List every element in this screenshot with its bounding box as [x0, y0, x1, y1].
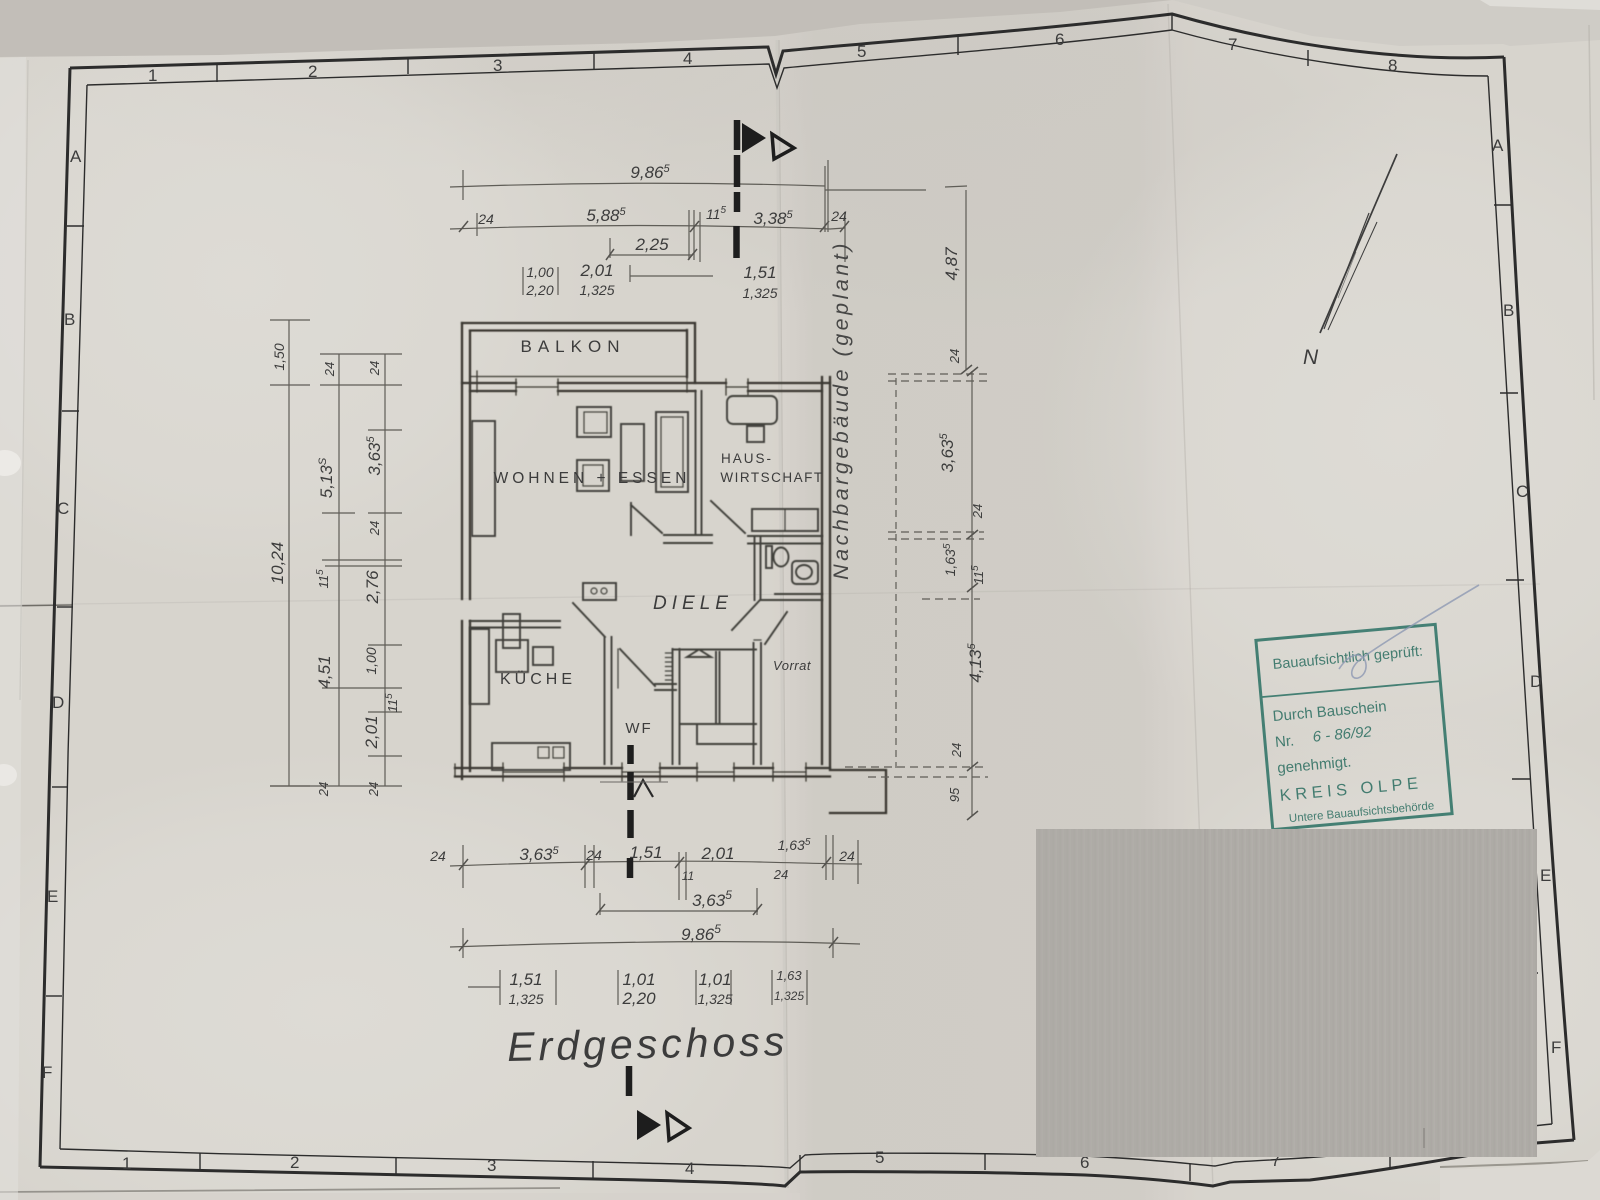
svg-text:E: E — [1540, 866, 1551, 885]
svg-text:4: 4 — [683, 49, 692, 68]
svg-text:1,63: 1,63 — [776, 968, 802, 983]
svg-text:Erdgeschoss: Erdgeschoss — [507, 1018, 789, 1070]
svg-text:3: 3 — [493, 56, 502, 75]
svg-text:1,01: 1,01 — [698, 970, 731, 989]
svg-text:1,51: 1,51 — [629, 843, 662, 862]
svg-text:Vorrat: Vorrat — [773, 658, 812, 673]
svg-text:24: 24 — [366, 782, 381, 797]
svg-text:10,24: 10,24 — [268, 542, 287, 585]
svg-text:2,01: 2,01 — [579, 261, 613, 280]
svg-text:1,325: 1,325 — [774, 989, 804, 1003]
svg-text:Nachbargebäude (geplant): Nachbargebäude (geplant) — [829, 240, 853, 580]
svg-text:1,01: 1,01 — [622, 970, 655, 989]
svg-text:2,01: 2,01 — [700, 844, 734, 863]
svg-text:1,325: 1,325 — [742, 285, 777, 301]
svg-text:24: 24 — [949, 743, 964, 758]
svg-text:2: 2 — [290, 1153, 299, 1172]
svg-text:24: 24 — [322, 362, 337, 377]
svg-text:24: 24 — [585, 847, 602, 863]
svg-text:DIELE: DIELE — [653, 593, 733, 614]
svg-text:95: 95 — [947, 787, 962, 802]
svg-text:KÜCHE: KÜCHE — [500, 670, 576, 688]
svg-text:24: 24 — [316, 782, 331, 797]
svg-text:D: D — [1530, 672, 1542, 691]
svg-text:1,51: 1,51 — [743, 263, 776, 282]
svg-text:F: F — [42, 1063, 52, 1082]
svg-text:24: 24 — [773, 867, 788, 882]
svg-text:A: A — [1492, 136, 1504, 155]
svg-text:2,20: 2,20 — [621, 989, 656, 1008]
svg-text:HAUS-: HAUS- — [721, 451, 773, 466]
svg-text:Nr.: Nr. — [1274, 732, 1295, 751]
svg-text:WIRTSCHAFT: WIRTSCHAFT — [720, 470, 823, 485]
svg-text:24: 24 — [838, 848, 855, 864]
svg-text:B: B — [64, 310, 75, 329]
svg-text:24: 24 — [947, 349, 962, 364]
svg-text:A: A — [70, 147, 82, 166]
svg-text:1,325: 1,325 — [579, 282, 614, 298]
svg-text:1,51: 1,51 — [509, 970, 542, 989]
svg-text:1,00: 1,00 — [363, 647, 379, 674]
svg-text:1,325: 1,325 — [508, 991, 543, 1007]
svg-text:2,76: 2,76 — [363, 570, 382, 605]
svg-text:4,51: 4,51 — [315, 655, 334, 688]
svg-text:WOHNEN + ESSEN: WOHNEN + ESSEN — [494, 470, 691, 487]
svg-text:2,20: 2,20 — [525, 282, 553, 298]
svg-text:6: 6 — [1055, 30, 1064, 49]
svg-text:1,50: 1,50 — [271, 343, 287, 370]
svg-text:24: 24 — [367, 361, 382, 376]
svg-text:2,01: 2,01 — [362, 715, 381, 749]
svg-text:2: 2 — [308, 62, 317, 81]
svg-text:1: 1 — [148, 66, 157, 85]
svg-text:24: 24 — [429, 848, 446, 864]
svg-text:2,25: 2,25 — [634, 235, 669, 254]
svg-text:11: 11 — [682, 869, 694, 883]
svg-text:3: 3 — [487, 1156, 496, 1175]
svg-text:N: N — [1303, 346, 1319, 369]
svg-text:D: D — [52, 693, 64, 712]
svg-text:24: 24 — [970, 504, 985, 519]
svg-text:B: B — [1503, 301, 1514, 320]
svg-text:C: C — [1516, 482, 1528, 501]
svg-text:7: 7 — [1228, 35, 1237, 54]
svg-text:WF: WF — [625, 720, 652, 737]
svg-text:E: E — [47, 887, 58, 906]
svg-text:24: 24 — [830, 208, 847, 224]
svg-text:5: 5 — [875, 1148, 884, 1167]
svg-text:4,87: 4,87 — [942, 247, 961, 281]
svg-text:1,325: 1,325 — [697, 991, 732, 1007]
svg-text:1: 1 — [122, 1154, 131, 1173]
svg-text:4: 4 — [685, 1159, 694, 1178]
svg-text:F: F — [1551, 1038, 1561, 1057]
svg-text:24: 24 — [477, 211, 494, 227]
svg-text:C: C — [57, 499, 69, 518]
svg-text:1,00: 1,00 — [526, 264, 553, 280]
svg-text:5: 5 — [857, 42, 866, 61]
svg-text:BALKON: BALKON — [521, 337, 626, 356]
svg-text:24: 24 — [367, 521, 382, 536]
svg-text:8: 8 — [1388, 56, 1397, 75]
